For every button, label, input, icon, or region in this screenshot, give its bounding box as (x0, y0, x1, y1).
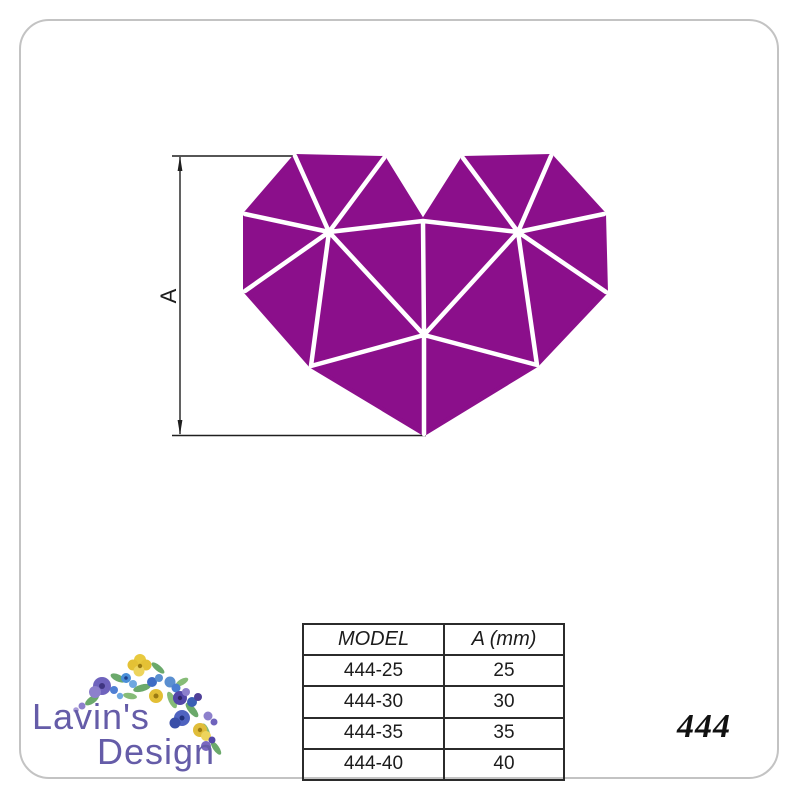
brand-logo: Lavin's Design (0, 600, 280, 800)
cell-model: 444-40 (303, 749, 444, 780)
cell-a-mm: 40 (444, 749, 564, 780)
cell-a-mm: 25 (444, 655, 564, 686)
table-row: 444-40 40 (303, 749, 564, 780)
technical-drawing: A (0, 0, 800, 560)
cell-a-mm: 35 (444, 718, 564, 749)
flower (187, 693, 202, 707)
flower (204, 712, 218, 726)
dimension-arrow-up (178, 156, 183, 171)
size-table: MODEL A (mm) 444-25 25 444-30 30 444-35 … (302, 623, 565, 781)
cell-model: 444-25 (303, 655, 444, 686)
cell-model: 444-35 (303, 718, 444, 749)
flower (89, 677, 111, 698)
header-a-mm: A (mm) (444, 624, 564, 655)
logo-text-line2: Design (97, 731, 215, 773)
flower (170, 710, 191, 729)
model-number: 444 (664, 708, 744, 746)
flower (128, 654, 152, 677)
table-header-row: MODEL A (mm) (303, 624, 564, 655)
header-model: MODEL (303, 624, 444, 655)
flower (147, 674, 163, 687)
table-row: 444-35 35 (303, 718, 564, 749)
dimension-arrow-down (178, 420, 183, 435)
flower (149, 689, 163, 703)
cell-a-mm: 30 (444, 686, 564, 717)
flower (165, 677, 181, 693)
cell-model: 444-30 (303, 686, 444, 717)
table-row: 444-25 25 (303, 655, 564, 686)
dimension-label: A (156, 288, 181, 303)
flower (121, 673, 137, 688)
table-row: 444-30 30 (303, 686, 564, 717)
faceted-heart (245, 156, 606, 434)
